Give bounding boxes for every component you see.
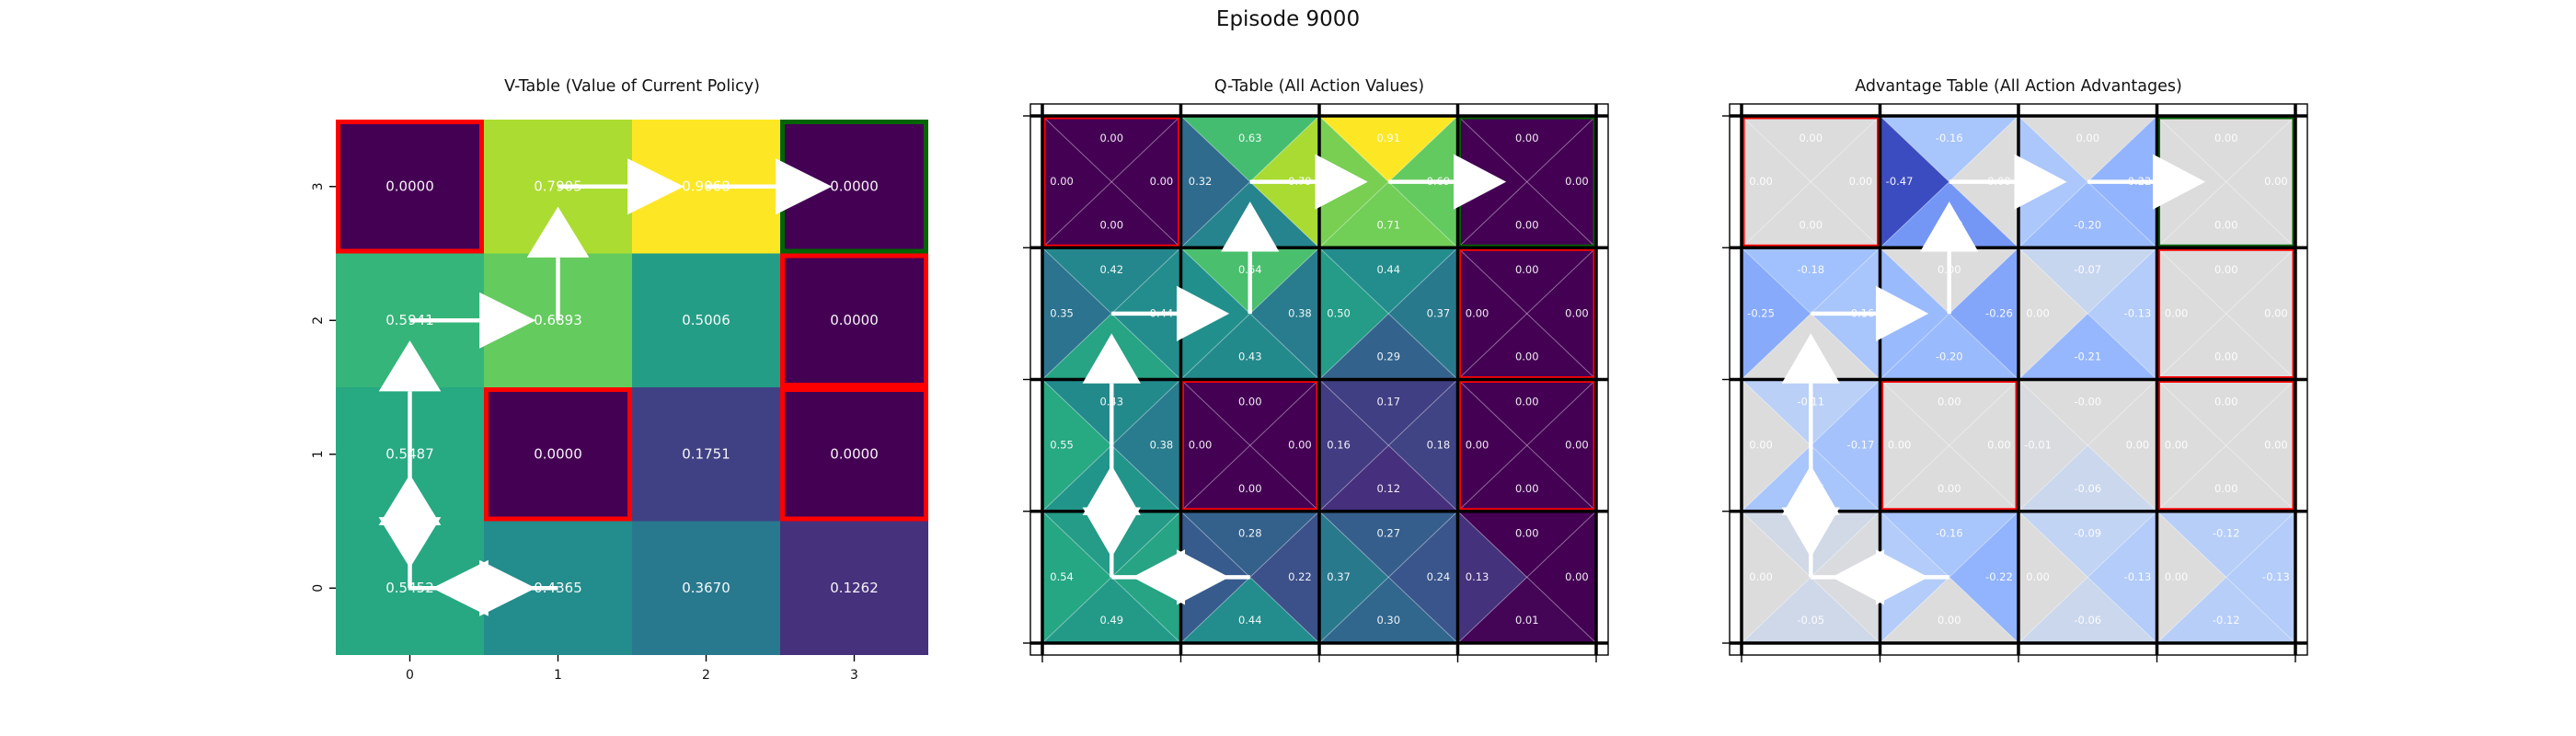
down-action-value: -0.20 [1936,351,1963,363]
state-value: 0.0000 [830,178,879,194]
left-action-value: 0.00 [1888,439,1912,452]
state-value: 0.5006 [682,312,730,328]
left-action-value: 0.00 [1050,175,1074,188]
state-value: 0.0000 [385,178,434,194]
down-action-value: 0.44 [1238,614,1262,627]
right-action-value: 0.18 [1427,439,1451,452]
up-action-value: 0.00 [1515,132,1539,144]
up-action-value: -0.16 [1936,527,1963,540]
up-action-value: -0.16 [1936,132,1963,144]
down-action-value: 0.29 [1376,351,1400,363]
state-value: 0.3670 [682,580,730,596]
y-tick-label: 1 [311,450,326,458]
down-action-value: -0.06 [2074,614,2101,627]
v-cell-r2c1: 0.0000 [484,387,632,522]
right-action-value: 0.00 [2264,306,2288,319]
down-action-value: 0.01 [1515,614,1539,627]
down-action-value: -0.06 [2074,482,2101,495]
adv-panel: 0.000.000.000.00-0.16-0.470.00-0.300.00-… [1722,104,2307,662]
down-action-value: 0.00 [2214,218,2238,231]
adv-cell-r0c0: 0.000.000.000.00 [1742,116,1880,247]
q-cell-r1c3: 0.000.000.000.00 [1458,247,1597,379]
right-action-value: -0.26 [1985,306,2013,319]
up-action-value: 0.00 [2076,132,2099,144]
right-action-value: -0.13 [2262,570,2290,583]
right-action-value: 0.00 [1565,175,1589,188]
q-panel: 0.000.000.000.000.630.320.790.410.910.72… [1023,104,1608,662]
right-action-value: 0.00 [1288,439,1312,452]
state-value: 0.0000 [830,312,879,328]
up-action-value: 0.27 [1376,527,1400,540]
x-tick-label: 0 [406,668,414,683]
right-action-value: 0.00 [2264,175,2288,188]
q-cell-r3c3: 0.000.130.000.01 [1458,512,1597,643]
up-action-value: 0.00 [1238,395,1262,408]
up-action-value: 0.00 [2214,263,2238,276]
right-action-value: 0.00 [1565,439,1589,452]
right-action-value: 0.00 [1849,175,1873,188]
left-action-value: 0.35 [1050,306,1074,319]
q-cell-r3c2: 0.270.370.240.30 [1319,512,1458,643]
v-panel: 0.00000.79050.90680.00000.59410.68930.50… [311,120,928,683]
y-tick-label: 3 [311,182,326,190]
up-action-value: 0.28 [1238,527,1262,540]
left-action-value: -0.01 [2024,439,2052,452]
q-cell-r2c2: 0.170.160.180.12 [1319,380,1458,512]
right-action-value: 0.00 [2264,439,2288,452]
left-action-value: 0.00 [1749,570,1773,583]
left-action-value: 0.00 [2026,570,2050,583]
down-action-value: 0.43 [1238,351,1262,363]
adv-cell-r1c2: -0.070.00-0.13-0.21 [2018,247,2157,379]
left-action-value: 0.50 [1327,306,1351,319]
up-action-value: 0.91 [1376,132,1400,144]
y-tick-label: 0 [311,584,326,592]
state-value: 0.1262 [830,580,879,596]
left-action-value: 0.37 [1327,570,1351,583]
q-cell-r0c0: 0.000.000.000.00 [1042,116,1181,247]
down-action-value: -0.21 [2074,351,2101,363]
right-action-value: 0.24 [1427,570,1451,583]
x-tick-label: 2 [702,668,710,683]
v-cell-r1c2: 0.5006 [632,254,780,388]
up-action-value: 0.00 [1515,263,1539,276]
right-action-value: -0.13 [2124,570,2152,583]
state-value: 0.0000 [534,445,582,462]
left-action-value: -0.25 [1747,306,1775,319]
up-action-value: 0.00 [1515,527,1539,540]
up-action-value: -0.07 [2074,263,2101,276]
adv-cell-r1c3: 0.000.000.000.00 [2157,247,2296,379]
up-action-value: 0.44 [1376,263,1400,276]
figure-canvas: Episode 9000 V-Table (Value of Current P… [0,0,2576,736]
down-action-value: 0.00 [1515,218,1539,231]
left-action-value: 0.00 [1466,439,1489,452]
up-action-value: 0.00 [1938,395,1961,408]
right-action-value: 0.00 [1987,439,2011,452]
v-cell-r0c0: 0.0000 [336,120,484,254]
right-action-value: 0.00 [1565,306,1589,319]
down-action-value: -0.05 [1797,614,1824,627]
up-action-value: -0.09 [2074,527,2101,540]
right-action-value: 0.00 [1150,175,1174,188]
v-cell-r3c3: 0.1262 [780,522,928,656]
left-action-value: 0.00 [2165,570,2189,583]
down-action-value: 0.00 [1515,351,1539,363]
down-action-value: 0.00 [2214,482,2238,495]
state-value: 0.0000 [830,445,879,462]
v-cell-r2c2: 0.1751 [632,387,780,522]
down-action-value: 0.00 [1238,482,1262,495]
up-action-value: -0.00 [2074,395,2101,408]
down-action-value: 0.12 [1376,482,1400,495]
left-action-value: 0.16 [1327,439,1351,452]
v-cell-r2c3: 0.0000 [780,387,928,522]
left-action-value: 0.55 [1050,439,1074,452]
down-action-value: -0.20 [2074,218,2101,231]
right-action-value: -0.22 [1985,570,2013,583]
right-action-value: 0.37 [1427,306,1451,319]
q-cell-r1c2: 0.440.500.370.29 [1319,247,1458,379]
up-action-value: 0.42 [1099,263,1123,276]
down-action-value: 0.00 [2214,351,2238,363]
down-action-value: 0.00 [1099,218,1123,231]
adv-cell-r2c3: 0.000.000.000.00 [2157,380,2296,512]
down-action-value: 0.49 [1099,614,1123,627]
up-action-value: 0.00 [1515,395,1539,408]
y-tick-label: 2 [311,316,326,325]
left-action-value: 0.00 [2165,306,2189,319]
up-action-value: 0.00 [2214,395,2238,408]
v-cell-r1c3: 0.0000 [780,254,928,388]
up-action-value: -0.12 [2213,527,2240,540]
left-action-value: 0.00 [2165,439,2189,452]
up-action-value: 0.00 [2214,132,2238,144]
left-action-value: 0.00 [2026,306,2050,319]
up-action-value: 0.63 [1238,132,1262,144]
left-action-value: 0.00 [1189,439,1213,452]
v-cell-r3c2: 0.3670 [632,522,780,656]
up-action-value: 0.00 [1799,132,1823,144]
right-action-value: -0.13 [2124,306,2152,319]
down-action-value: 0.00 [1515,482,1539,495]
down-action-value: 0.00 [1938,482,1961,495]
right-action-value: 0.38 [1288,306,1312,319]
up-action-value: -0.18 [1797,263,1824,276]
plots-svg: 0.00000.79050.90680.00000.59410.68930.50… [0,0,2576,736]
q-cell-r2c3: 0.000.000.000.00 [1458,380,1597,512]
state-value: 0.1751 [682,445,730,462]
q-cell-r2c1: 0.000.000.000.00 [1181,380,1320,512]
down-action-value: -0.12 [2213,614,2240,627]
left-action-value: 0.13 [1466,570,1489,583]
adv-cell-r2c2: -0.00-0.010.00-0.06 [2018,380,2157,512]
adv-cell-r3c3: -0.120.00-0.13-0.12 [2157,512,2296,643]
up-action-value: 0.17 [1376,395,1400,408]
left-action-value: 0.00 [1749,439,1773,452]
down-action-value: 0.71 [1376,218,1400,231]
right-action-value: 0.00 [2126,439,2150,452]
right-action-value: 0.00 [1565,570,1589,583]
x-tick-label: 1 [554,668,562,683]
up-action-value: 0.00 [1099,132,1123,144]
left-action-value: 0.00 [1466,306,1489,319]
down-action-value: 0.00 [1799,218,1823,231]
right-action-value: 0.22 [1288,570,1312,583]
right-action-value: 0.38 [1150,439,1174,452]
right-action-value: -0.17 [1847,439,1875,452]
left-action-value: -0.47 [1886,175,1914,188]
left-action-value: 0.32 [1189,175,1213,188]
adv-cell-r2c1: 0.000.000.000.00 [1880,380,2019,512]
adv-cell-r3c2: -0.090.00-0.13-0.06 [2018,512,2157,643]
down-action-value: 0.30 [1376,614,1400,627]
left-action-value: 0.54 [1050,570,1074,583]
down-action-value: 0.00 [1938,614,1961,627]
x-tick-label: 3 [850,668,858,683]
left-action-value: 0.00 [1749,175,1773,188]
